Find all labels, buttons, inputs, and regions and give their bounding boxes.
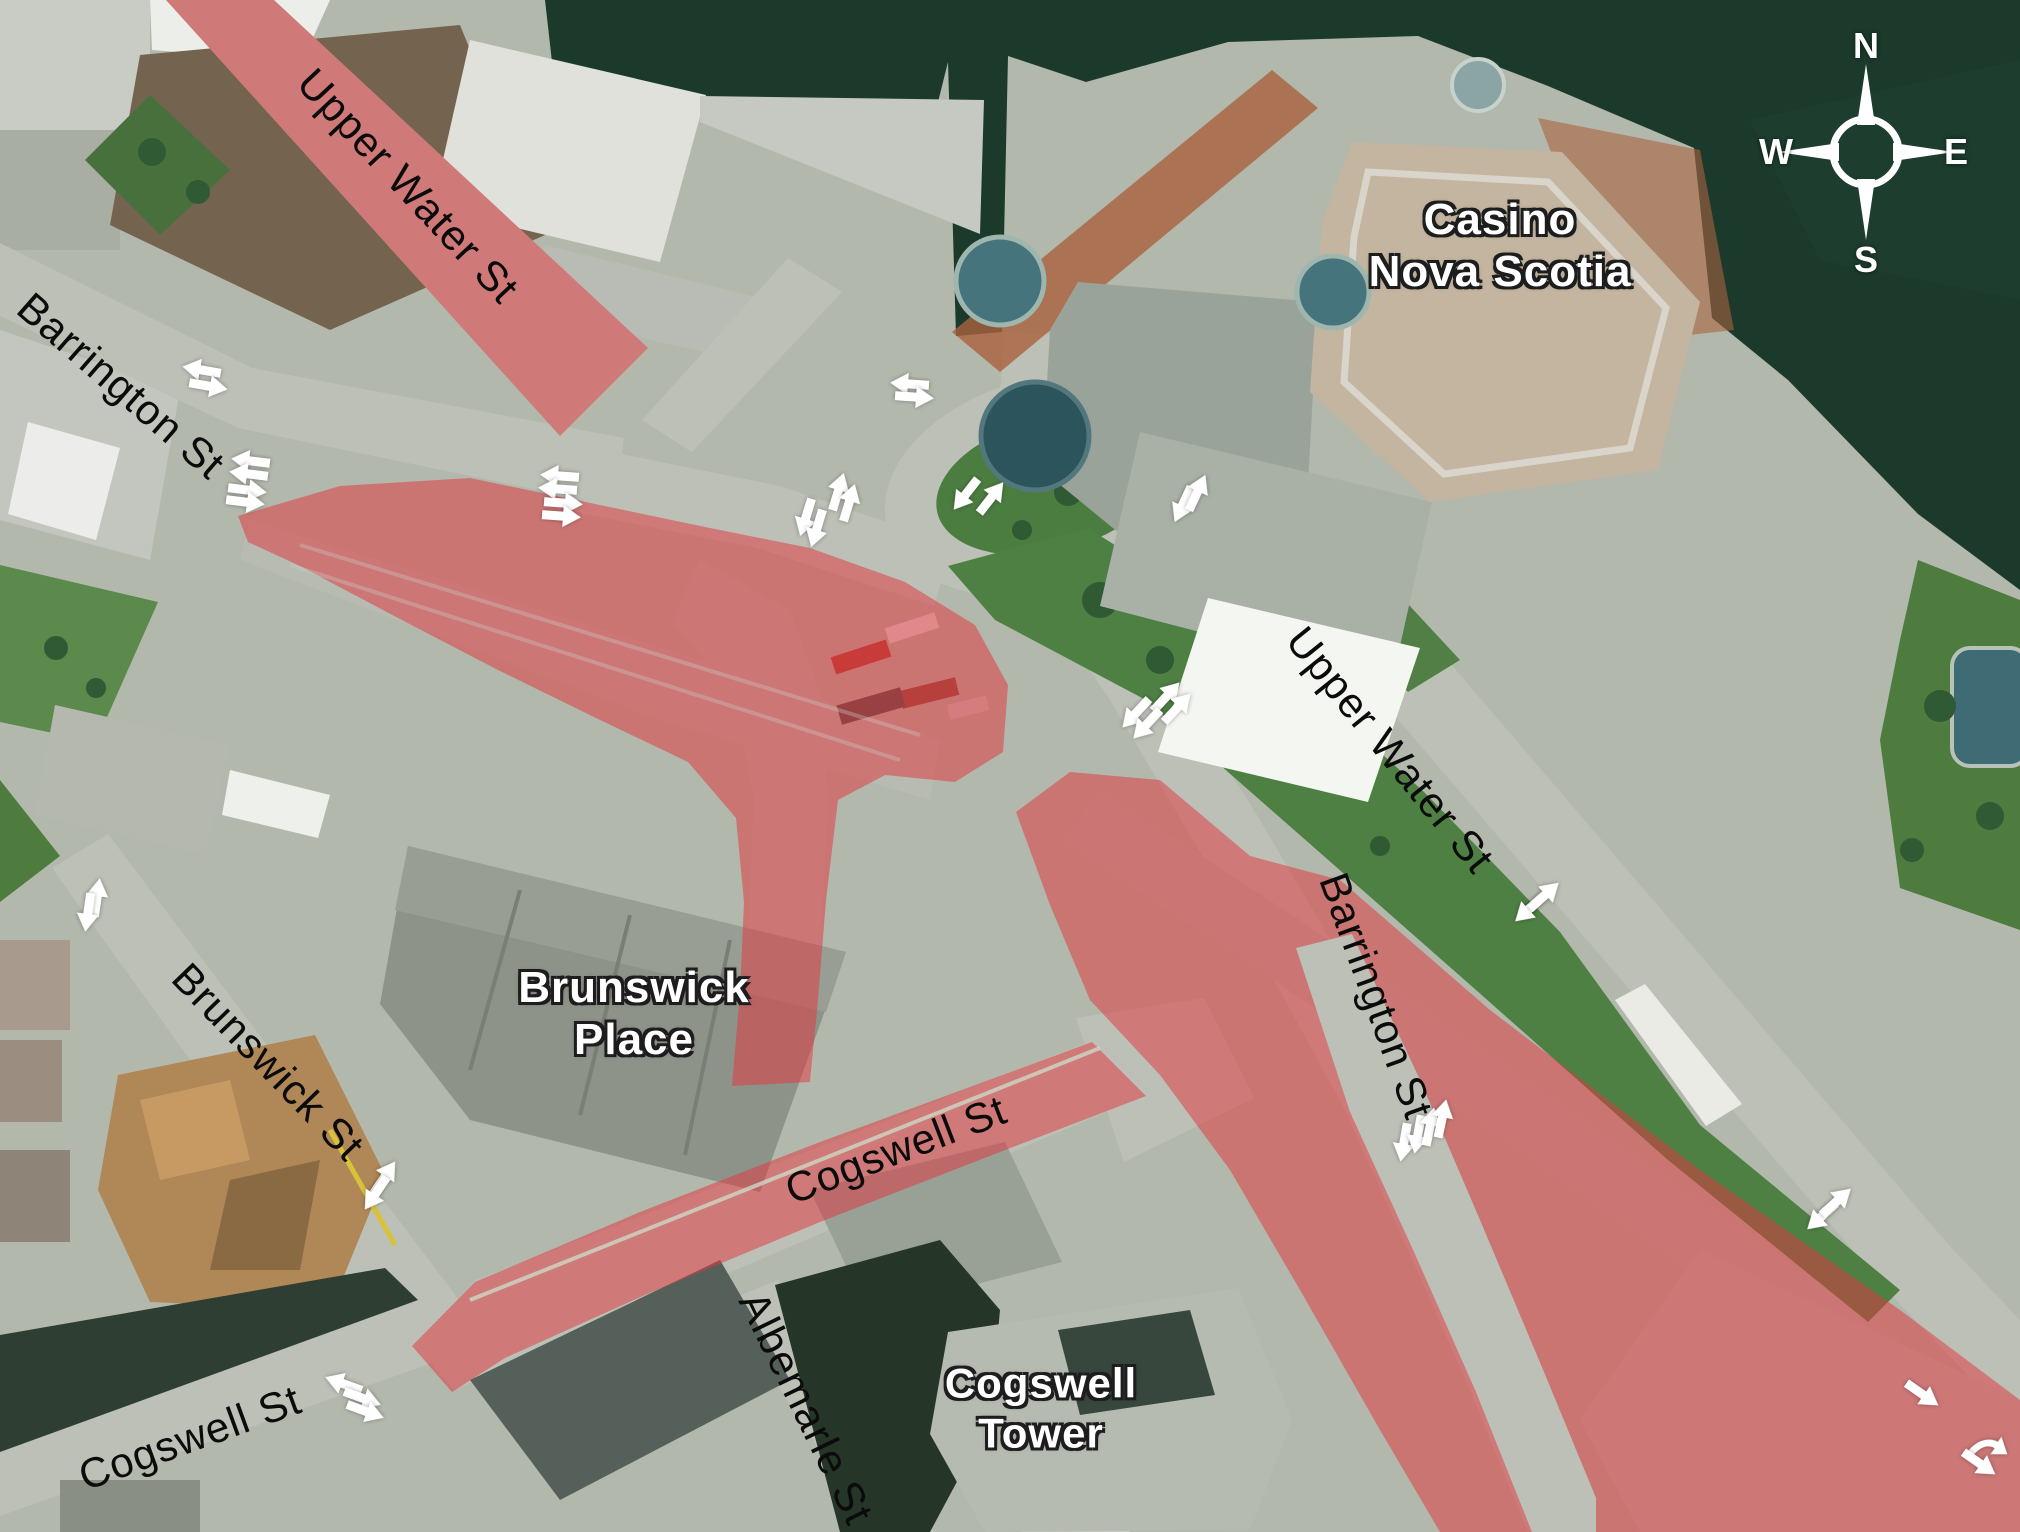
casino-dome (956, 237, 1044, 325)
map-canvas (0, 0, 2020, 1532)
casino-round-roof (981, 382, 1089, 490)
casino-dome (1297, 256, 1369, 328)
aerial-map: Upper Water St Barrington St Upper Water… (0, 0, 2020, 1532)
